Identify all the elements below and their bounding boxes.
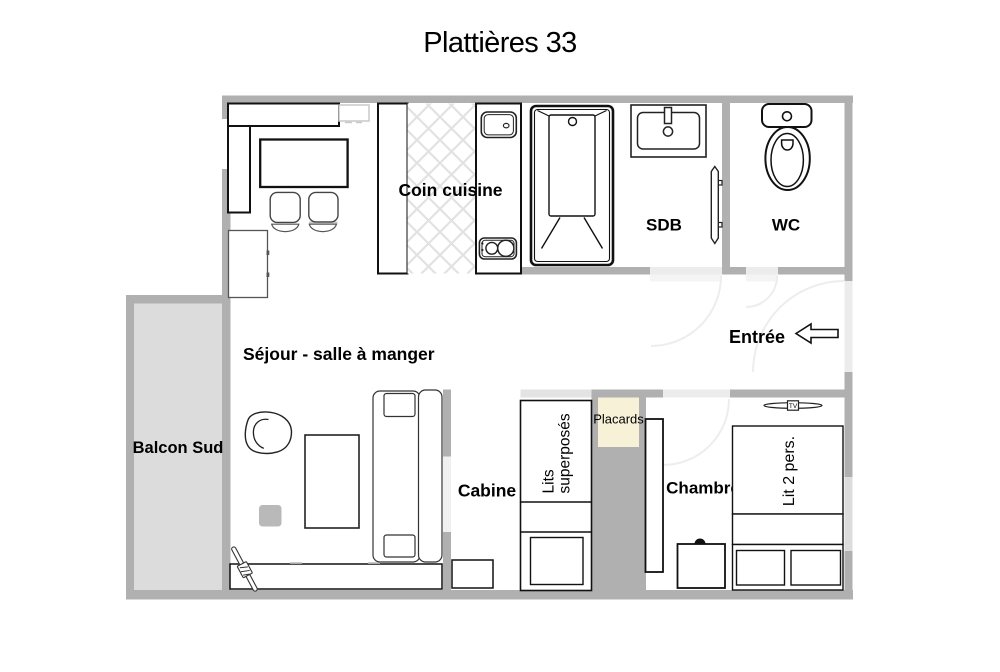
svg-text:SDB: SDB xyxy=(646,216,682,235)
svg-text:Lits: Lits xyxy=(541,469,558,493)
svg-text:Cabine: Cabine xyxy=(458,481,517,501)
svg-text:Chambre: Chambre xyxy=(666,479,740,498)
svg-text:TV: TV xyxy=(789,403,798,410)
svg-text:Coin cuisine: Coin cuisine xyxy=(398,180,502,200)
svg-text:Entrée: Entrée xyxy=(729,327,785,347)
svg-text:superposés: superposés xyxy=(557,413,574,493)
svg-text:Plattières 33: Plattières 33 xyxy=(423,27,576,59)
svg-text:WC: WC xyxy=(772,216,800,235)
svg-text:Balcon Sud: Balcon Sud xyxy=(133,439,224,457)
svg-text:Lit 2 pers.: Lit 2 pers. xyxy=(781,436,798,506)
svg-text:Placards: Placards xyxy=(593,412,644,427)
svg-text:Séjour - salle à manger: Séjour - salle à manger xyxy=(243,344,435,364)
